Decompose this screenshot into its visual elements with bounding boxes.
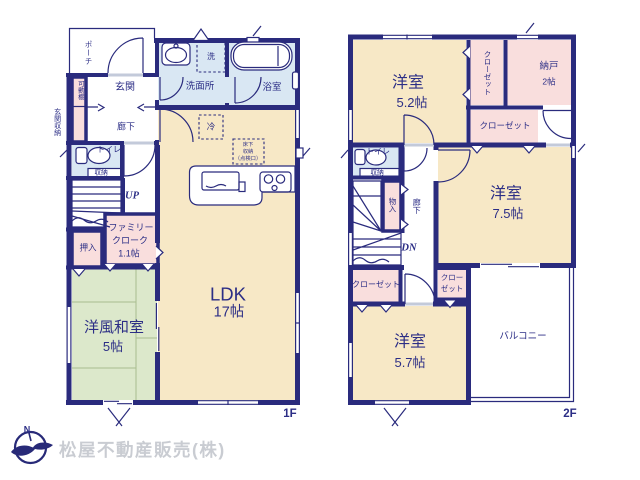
stairs-down-label: DN — [401, 242, 416, 253]
stairs-up-label: UP — [125, 190, 139, 201]
room-label-porch: ポーチ — [84, 40, 92, 66]
room-label-oshiire: 押入 — [79, 244, 96, 253]
room-label-closet2: クローゼット — [479, 122, 530, 131]
room-label-storeroom-size: 2帖 — [542, 78, 555, 87]
floor1-label: 1F — [283, 408, 296, 420]
room-label-tatami-room-size: 5帖 — [103, 340, 123, 354]
room-label-balcony: バルコニー — [499, 332, 546, 342]
room-label-monoire: 物入 — [388, 198, 396, 213]
underfloor-label-1: 床下 — [243, 143, 254, 149]
room-label-closet3: クローゼット — [352, 281, 400, 289]
room-label-movable-shelf: 可動棚 — [76, 80, 83, 100]
room-label-entrance-storage: 玄関収納 — [53, 108, 60, 136]
room-label-entrance: 玄関 — [115, 83, 135, 94]
room-label-hallway-2f: 廊下 — [412, 198, 420, 214]
room-label-washroom: 洗面所 — [186, 82, 215, 92]
room-label-closet4-1: クロー — [441, 274, 464, 282]
room-label-bedroom2-size: 7.5帖 — [492, 207, 523, 221]
company-name: 松屋不動産販売(株) — [59, 441, 226, 459]
compass-north-label: N — [24, 425, 31, 434]
room-label-storeroom: 納戸 — [539, 62, 558, 72]
underfloor-label-2: 収納 — [243, 150, 254, 156]
room-label-bathroom: 浴室 — [262, 83, 281, 93]
compass-logo — [11, 431, 53, 463]
room-label-tatami-room: 洋風和室 — [84, 320, 144, 336]
room-label-toilet-storage-1f: 収納 — [94, 169, 108, 176]
room-label-toilet-1f: トイレ — [97, 146, 121, 154]
floor2-label: 2F — [563, 408, 576, 420]
room-label-bedroom3: 洋室 — [394, 335, 426, 352]
room-label-toilet-2f: トイレ — [366, 148, 390, 156]
room-label-closet4-2: ゼット — [441, 285, 464, 293]
underfloor-label-3: （点検口） — [235, 157, 262, 163]
floorplan-canvas: ポーチ 可動棚 玄関 玄関収納 廊下 トイレ 収納 UP 押入 ファミリー クロ… — [0, 0, 640, 480]
room-label-ldk-size: 17帖 — [214, 305, 245, 320]
fridge-label: 冷 — [207, 123, 216, 132]
room-label-bedroom2: 洋室 — [490, 187, 522, 204]
room-label-closet1: クローゼット — [483, 51, 491, 96]
room-label-bedroom3-size: 5.7帖 — [394, 356, 425, 370]
room-label-toilet-storage-2f: 収納 — [370, 169, 384, 176]
room-label-family-cloak-2: クローク — [112, 236, 148, 245]
washbasin-icon — [162, 43, 190, 65]
washer-label: 洗 — [207, 53, 215, 61]
room-label-bedroom1-size: 5.2帖 — [396, 96, 427, 110]
room-label-family-cloak-size: 1.1帖 — [118, 249, 140, 258]
room-label-ldk: LDK — [210, 284, 246, 303]
room-label-hallway-1f: 廊下 — [117, 122, 135, 131]
room-fills-2f — [353, 40, 571, 402]
room-label-bedroom1: 洋室 — [392, 76, 424, 93]
room-label-family-cloak-1: ファミリー — [108, 223, 153, 232]
